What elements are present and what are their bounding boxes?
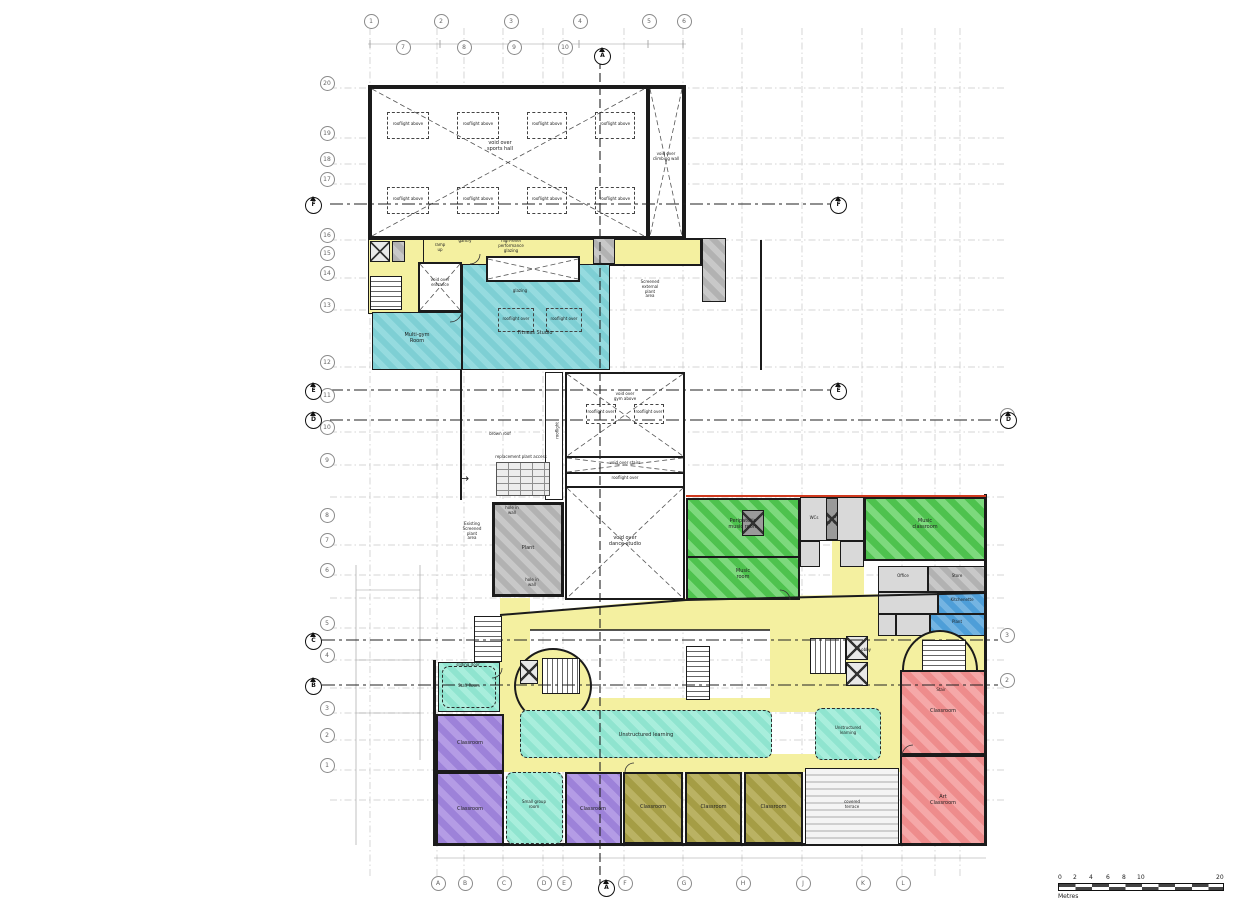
grid-bubble: A bbox=[431, 876, 446, 891]
stair-mid-east bbox=[810, 638, 846, 674]
grid-bubble: 2 bbox=[434, 14, 449, 29]
grid-bubble: 8 bbox=[320, 508, 335, 523]
section-marker: F bbox=[305, 197, 322, 214]
grid-bubble: 6 bbox=[677, 14, 692, 29]
grid-bubble: 7 bbox=[396, 40, 411, 55]
sports-hall-dividing-wall bbox=[646, 89, 650, 236]
riser bbox=[593, 238, 615, 264]
grid-bubble: 19 bbox=[320, 126, 335, 141]
classroom-olive-1 bbox=[623, 772, 683, 844]
store-room bbox=[928, 566, 986, 592]
stair-west bbox=[542, 658, 580, 694]
rooflight-box bbox=[546, 308, 582, 332]
floor-plan-canvas: → rooflight above rooflight above bbox=[0, 0, 1234, 920]
grid-bubble: 10 bbox=[558, 40, 573, 55]
lift-shaft bbox=[846, 636, 868, 660]
wc-cubicle bbox=[878, 614, 896, 636]
section-marker: D bbox=[1000, 412, 1017, 429]
void-over-entrance bbox=[418, 262, 462, 312]
scale-bar-ticks: 0 2 4 6 8 10 20 bbox=[1058, 874, 1226, 883]
rooflight-box bbox=[527, 112, 567, 139]
grid-bubble: 3 bbox=[504, 14, 519, 29]
grid-bubble: C bbox=[497, 876, 512, 891]
scale-tick: 2 bbox=[1073, 874, 1077, 881]
grid-bubble: J bbox=[796, 876, 811, 891]
lift-shaft bbox=[520, 660, 538, 684]
grid-bubble: E bbox=[557, 876, 572, 891]
lift-shaft bbox=[370, 241, 390, 262]
grid-bubble: G bbox=[677, 876, 692, 891]
void-wall-3 bbox=[565, 486, 685, 488]
riser bbox=[392, 241, 405, 262]
grid-bubble: 3 bbox=[1000, 628, 1015, 643]
void-wall-1 bbox=[565, 456, 685, 458]
plant-screen-wall bbox=[760, 240, 762, 370]
section-marker: A bbox=[598, 880, 615, 897]
rooflight-box bbox=[457, 187, 499, 214]
scale-bar-unit: Metres bbox=[1058, 893, 1226, 900]
grid-bubble: 5 bbox=[642, 14, 657, 29]
shaft bbox=[742, 510, 764, 536]
scale-tick: 8 bbox=[1122, 874, 1126, 881]
grid-bubble: B bbox=[458, 876, 473, 891]
grid-bubble: 5 bbox=[320, 616, 335, 631]
wing-east-wall bbox=[984, 494, 987, 846]
scale-tick: 0 bbox=[1058, 874, 1062, 881]
scale-bar-graphic bbox=[1058, 883, 1224, 891]
wc-cubicle bbox=[840, 541, 864, 567]
plant-room bbox=[492, 502, 564, 597]
wc-cubicle bbox=[800, 541, 820, 567]
grid-bubble: 9 bbox=[507, 40, 522, 55]
grid-bubble: 20 bbox=[320, 76, 335, 91]
grid-bubble: 17 bbox=[320, 172, 335, 187]
grid-bubble: 3 bbox=[320, 701, 335, 716]
server-room bbox=[878, 592, 938, 614]
section-marker: E bbox=[305, 383, 322, 400]
scale-tick: 10 bbox=[1137, 874, 1145, 881]
rooflight-box bbox=[498, 308, 534, 332]
art-classroom bbox=[900, 755, 986, 845]
grid-bubble: 9 bbox=[320, 453, 335, 468]
screened-plant-label: Screened external plant area bbox=[630, 280, 670, 299]
covered-terrace bbox=[805, 768, 899, 845]
void-wall-2 bbox=[565, 472, 685, 474]
classroom-olive-3 bbox=[744, 772, 803, 844]
unstructured-learning-small bbox=[815, 708, 881, 760]
sports-hall-void bbox=[368, 85, 686, 240]
scale-tick: 6 bbox=[1106, 874, 1110, 881]
grid-bubble: 18 bbox=[320, 152, 335, 167]
grid-bubble: F bbox=[618, 876, 633, 891]
kitchenette bbox=[938, 592, 986, 614]
grid-bubble: D bbox=[537, 876, 552, 891]
multi-gym-room bbox=[372, 312, 462, 370]
grid-bubble: 13 bbox=[320, 298, 335, 313]
rooflight-box bbox=[595, 112, 635, 139]
grid-bubble: 16 bbox=[320, 228, 335, 243]
rooflight-box bbox=[586, 404, 616, 424]
grid-bubble: 4 bbox=[320, 648, 335, 663]
classroom-red-1 bbox=[900, 670, 986, 755]
section-marker: D bbox=[305, 412, 322, 429]
music-classroom bbox=[864, 497, 986, 561]
grid-bubble: 14 bbox=[320, 266, 335, 281]
window-void bbox=[486, 256, 580, 282]
grid-bubble: 2 bbox=[320, 728, 335, 743]
rooflight-box bbox=[527, 187, 567, 214]
grid-bubble: 12 bbox=[320, 355, 335, 370]
section-marker: E bbox=[830, 383, 847, 400]
rooflight-box bbox=[387, 187, 429, 214]
section-marker: B bbox=[305, 678, 322, 695]
stair-entrance bbox=[370, 276, 402, 310]
grid-bubble: 2 bbox=[1000, 673, 1015, 688]
rooflight-box bbox=[634, 404, 664, 424]
section-marker: C bbox=[305, 633, 322, 650]
existing-plant-label: Existing Screened plant area bbox=[455, 522, 489, 541]
grid-bubble: 4 bbox=[573, 14, 588, 29]
access-arrow-icon: → bbox=[460, 472, 469, 485]
grid-bubble: 1 bbox=[320, 758, 335, 773]
external-duct bbox=[702, 238, 726, 302]
section-marker: F bbox=[830, 197, 847, 214]
music-divider-wall bbox=[686, 556, 800, 558]
unstructured-learning-long bbox=[520, 710, 772, 758]
scale-bar: 0 2 4 6 8 10 20 Metres bbox=[1058, 874, 1226, 908]
brown-roof-label: brown roof bbox=[482, 432, 518, 437]
replacement-plant-access bbox=[496, 462, 550, 496]
staff-room-zone bbox=[442, 666, 496, 708]
small-group-room bbox=[506, 772, 563, 844]
grid-bubble: 15 bbox=[320, 246, 335, 261]
grid-bubble: 1 bbox=[364, 14, 379, 29]
classroom-purple-3 bbox=[565, 772, 622, 845]
scale-bar-lower bbox=[1059, 887, 1223, 890]
grid-bubble: L bbox=[896, 876, 911, 891]
grid-bubble: 7 bbox=[320, 533, 335, 548]
external-stair bbox=[474, 616, 502, 662]
stair-central bbox=[686, 646, 710, 700]
grid-bubble: 6 bbox=[320, 563, 335, 578]
grid-bubble: 8 bbox=[457, 40, 472, 55]
wc-shaft bbox=[826, 498, 838, 540]
lift-shaft bbox=[846, 662, 868, 686]
rooflight-box bbox=[595, 187, 635, 214]
classroom-olive-2 bbox=[685, 772, 742, 844]
classroom-purple-1 bbox=[436, 714, 504, 772]
fire-line-marking bbox=[686, 495, 986, 497]
grid-bubble: K bbox=[856, 876, 871, 891]
grid-bubble: H bbox=[736, 876, 751, 891]
classroom-purple-2 bbox=[436, 772, 504, 845]
scale-tick: 4 bbox=[1089, 874, 1093, 881]
office-room bbox=[878, 566, 928, 592]
section-marker: A bbox=[594, 48, 611, 65]
scale-tick: 20 bbox=[1216, 874, 1224, 881]
rooflight-box bbox=[387, 112, 429, 139]
rooflight-box bbox=[457, 112, 499, 139]
